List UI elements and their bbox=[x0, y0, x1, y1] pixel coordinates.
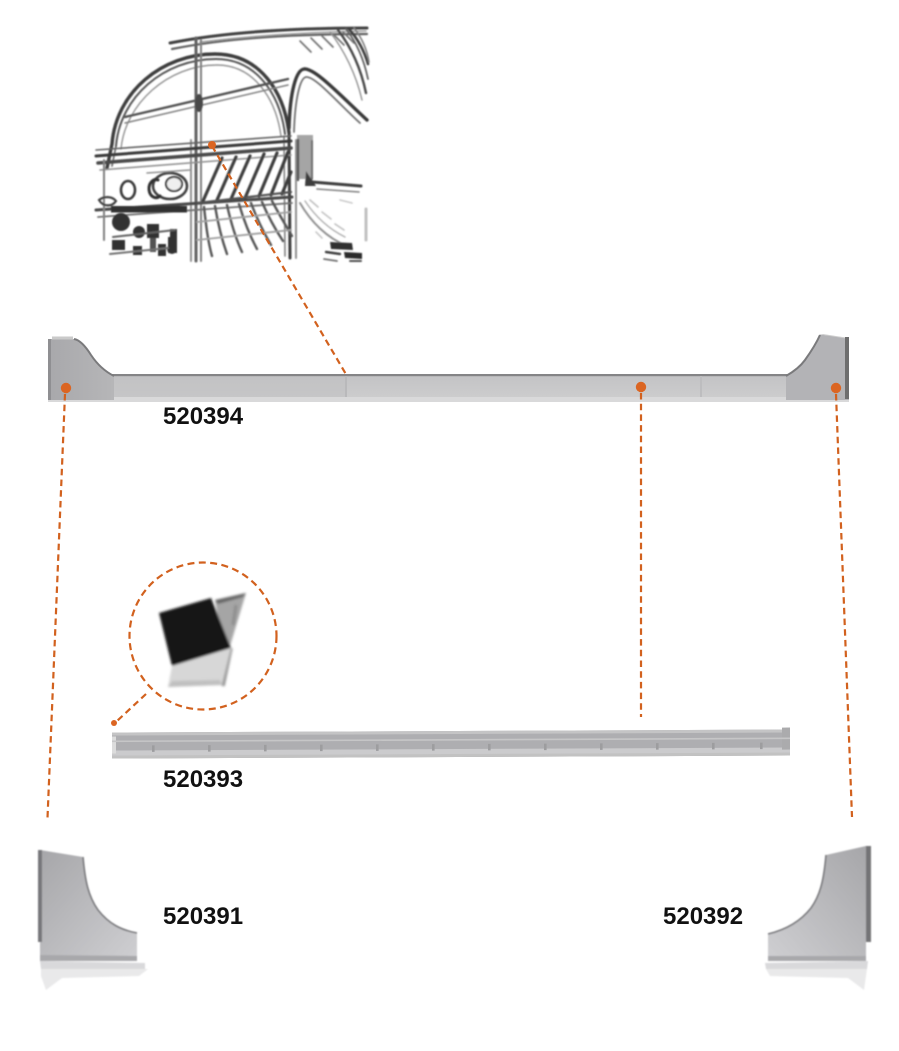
svg-text:520391: 520391 bbox=[163, 903, 243, 930]
svg-text:520394: 520394 bbox=[163, 403, 244, 430]
svg-text:520393: 520393 bbox=[163, 766, 243, 793]
svg-text:520392: 520392 bbox=[663, 903, 743, 930]
